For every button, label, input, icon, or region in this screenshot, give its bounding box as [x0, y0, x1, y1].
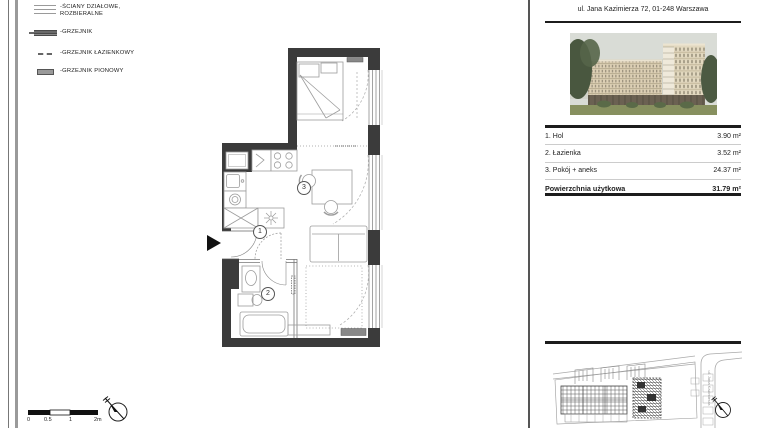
- north-compass-icon: [712, 397, 731, 418]
- total-area: 31.79 m²: [712, 184, 741, 193]
- room-label-hol: 1: [253, 225, 267, 239]
- rule-under-address: [545, 21, 741, 24]
- table-row: 1. Hol 3.90 m²: [545, 128, 741, 145]
- table-row: 3. Pokój + aneks 24.37 m²: [545, 163, 741, 180]
- building-footprints: [561, 378, 661, 422]
- washing-machine: [224, 191, 246, 208]
- pillow: [299, 64, 319, 77]
- bedroom: [297, 58, 363, 121]
- dishwasher: [252, 150, 271, 171]
- rule-above-siteplan: [545, 341, 741, 344]
- bathroom-radiator: [292, 276, 296, 294]
- room-name: 2. Łazienka: [545, 150, 581, 157]
- area-table: 1. Hol 3.90 m² 2. Łazienka 3.52 m² 3. Po…: [545, 128, 741, 196]
- entrance-arrow-icon: [207, 235, 221, 251]
- total-label: Powierzchnia użytkowa: [545, 184, 625, 193]
- washbasin: [242, 266, 260, 292]
- floorplan-sheet: -ŚCIANY DZIAŁOWE, ROZBIERALNE -GRZEJNIK …: [0, 0, 760, 428]
- stove: [271, 150, 297, 171]
- room-label-lazienka: 2: [261, 287, 275, 301]
- north-compass-icon: [103, 397, 127, 422]
- toilet: [238, 294, 253, 306]
- rule-below-table: [545, 193, 741, 196]
- bed: [297, 62, 343, 120]
- address: ul. Jana Kazimierza 72, 01-248 Warszawa: [545, 6, 741, 13]
- site-plan: ul. Jana Kazimierza: [545, 348, 742, 428]
- radiator: [347, 58, 363, 63]
- street-label: ul. Jana Kazimierza: [707, 371, 712, 407]
- window-glazing: [369, 70, 382, 328]
- entrance: [207, 231, 257, 259]
- chair: [325, 201, 338, 214]
- scale-tick: 1: [69, 417, 72, 423]
- bathroom: [238, 266, 295, 336]
- table-row: 2. Łazienka 3.52 m²: [545, 145, 741, 162]
- room-name: 3. Pokój + aneks: [545, 167, 597, 174]
- radiator: [341, 329, 366, 336]
- living-area: [288, 170, 367, 336]
- room-area: 3.90 m²: [717, 133, 741, 140]
- pillow: [321, 63, 337, 73]
- kitchen: [224, 150, 297, 228]
- room-area: 3.52 m²: [717, 150, 741, 157]
- room-name: 1. Hol: [545, 133, 563, 140]
- room-area: 24.37 m²: [713, 167, 741, 174]
- table: [312, 170, 352, 204]
- scale-tick: 0.5: [44, 417, 52, 423]
- scale-tick: 2m: [94, 417, 102, 423]
- scale-tick: 0: [27, 417, 30, 423]
- carpet: [306, 266, 362, 328]
- scale-bar: [24, 396, 134, 428]
- room-label-pokoj: 3: [297, 181, 311, 195]
- building-photo: [570, 33, 717, 115]
